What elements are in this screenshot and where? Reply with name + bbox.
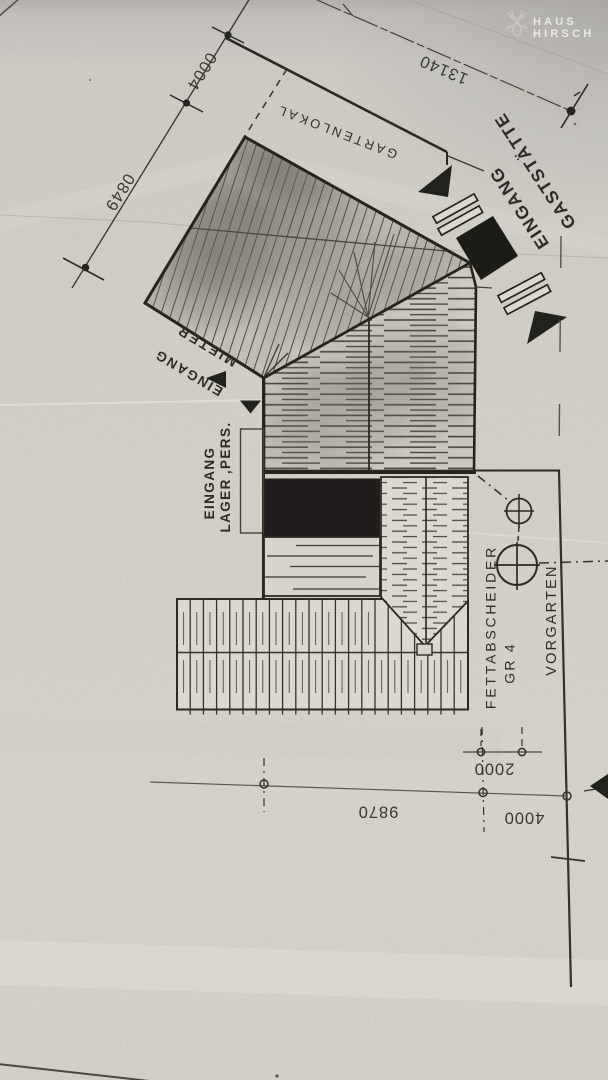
svg-text:2000: 2000 — [474, 760, 515, 778]
svg-text:EINGANG: EINGANG — [202, 447, 217, 520]
svg-text:9870: 9870 — [358, 803, 399, 821]
svg-text:FETTABSCHEIDER: FETTABSCHEIDER — [483, 545, 499, 709]
svg-text:HAUS: HAUS — [533, 16, 577, 28]
svg-text:GR 4: GR 4 — [502, 642, 518, 683]
svg-text:HIRSCH: HIRSCH — [533, 28, 594, 40]
svg-text:4000: 4000 — [504, 809, 545, 827]
svg-text:LAGER ,PERS.: LAGER ,PERS. — [218, 421, 233, 532]
svg-text:VORGARTEN: VORGARTEN — [544, 564, 560, 675]
